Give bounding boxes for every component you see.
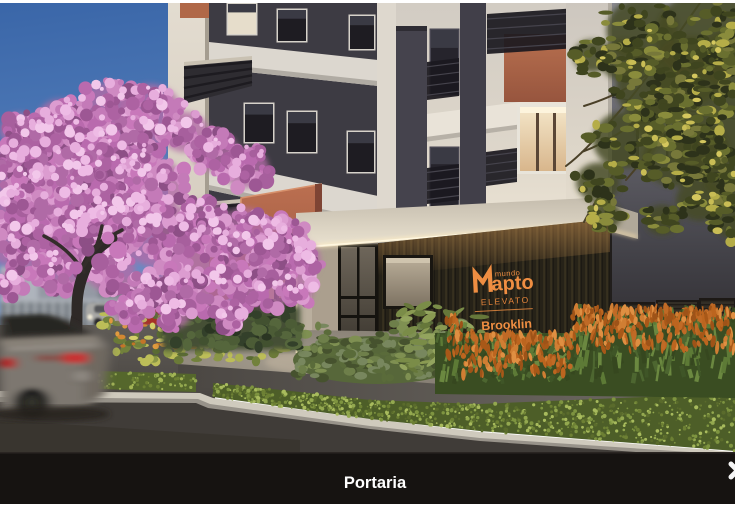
svg-text:apto: apto: [491, 272, 534, 296]
